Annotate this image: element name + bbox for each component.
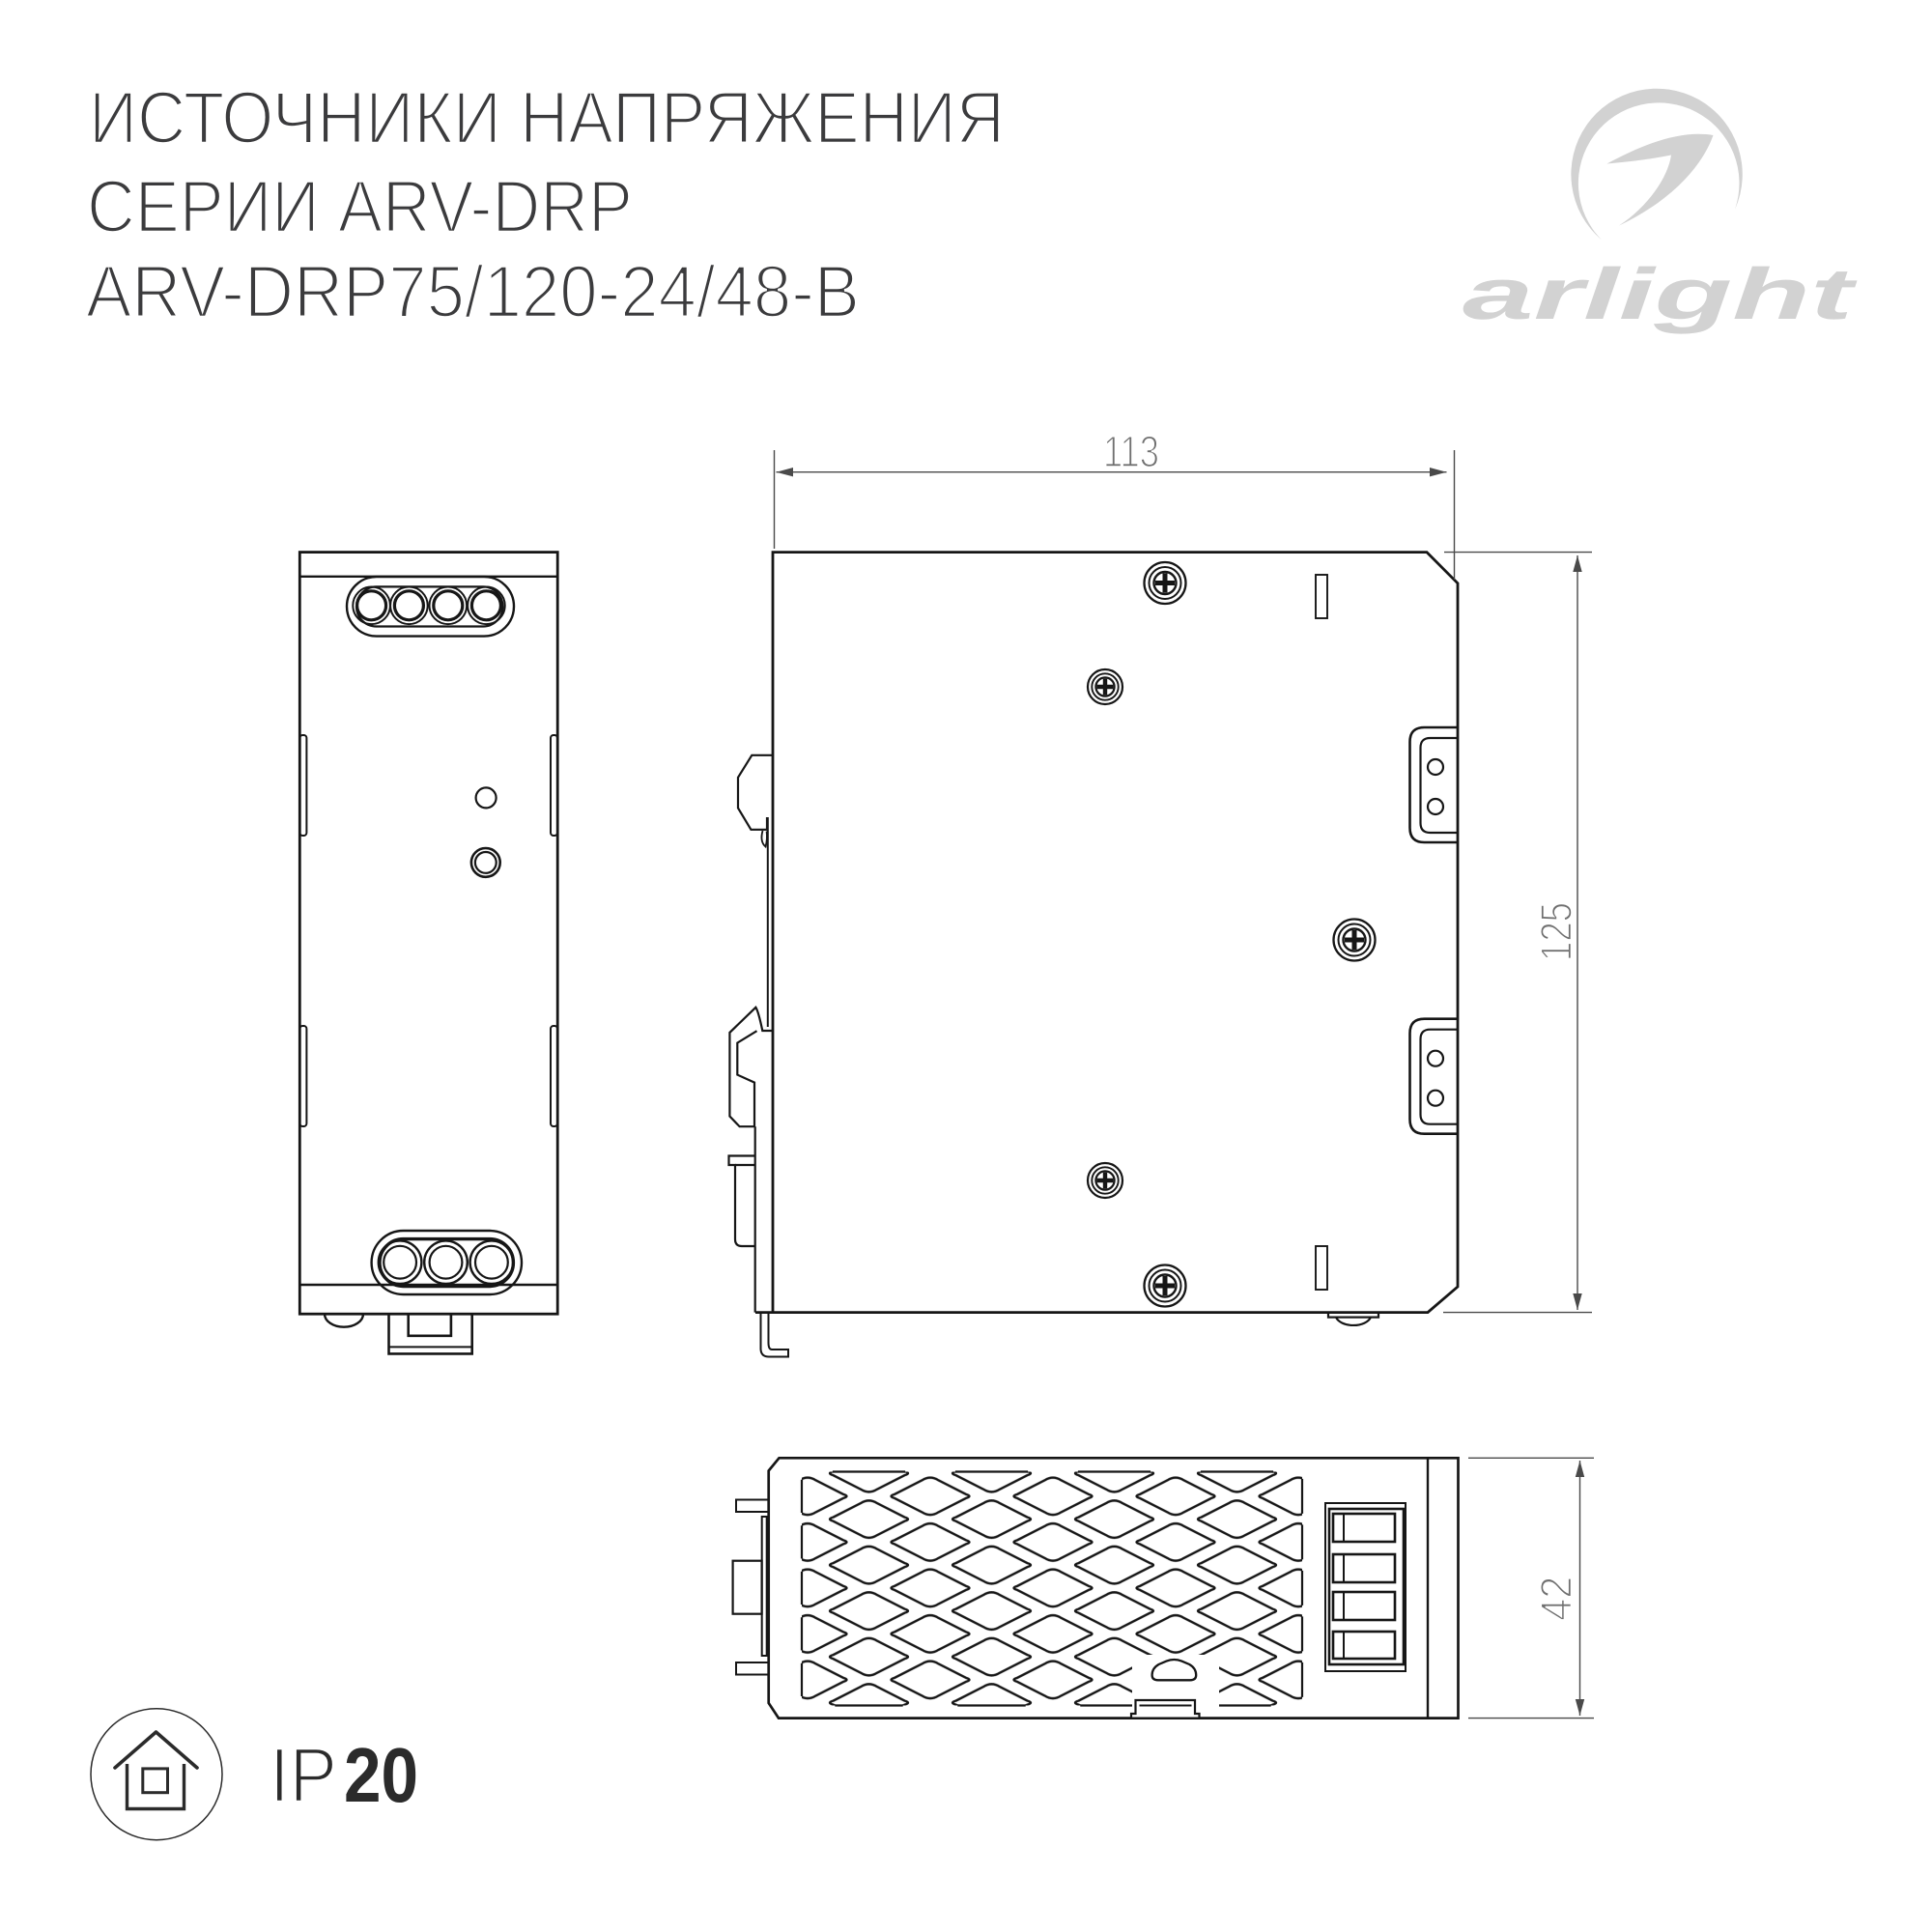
svg-text:ARV-DRP75/120-24/48-B: ARV-DRP75/120-24/48-B [86, 251, 860, 333]
svg-text:113: 113 [1103, 427, 1159, 476]
svg-text:20: 20 [344, 1732, 418, 1818]
svg-text:arlight: arlight [1463, 253, 1858, 334]
svg-text:IP: IP [270, 1732, 337, 1818]
svg-text:ИСТОЧНИКИ НАПРЯЖЕНИЯ: ИСТОЧНИКИ НАПРЯЖЕНИЯ [89, 77, 1005, 159]
svg-text:42: 42 [1532, 1577, 1581, 1621]
svg-text:125: 125 [1532, 902, 1581, 961]
svg-text:СЕРИИ ARV-DRP: СЕРИИ ARV-DRP [87, 166, 633, 248]
